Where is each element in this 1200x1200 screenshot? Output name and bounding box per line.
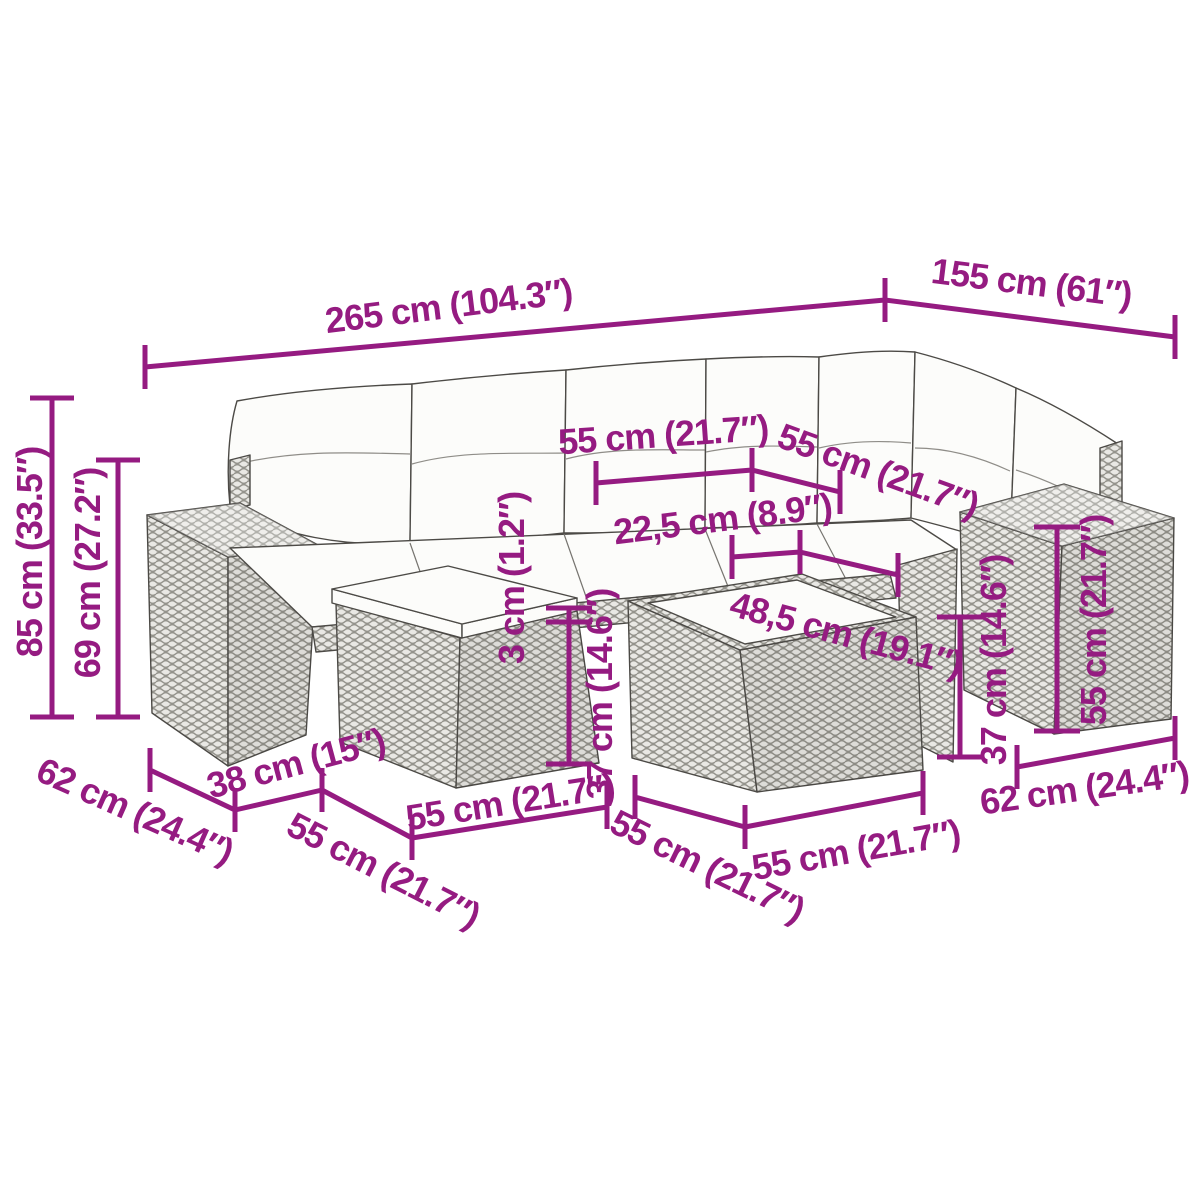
- dim-right-section-depth: 155 cm (61″): [885, 250, 1175, 359]
- dimension-diagram-svg: 265 cm (104.3″) 155 cm (61″) 85 cm (33.5…: [0, 0, 1200, 1200]
- left-armrest-left-face: [147, 515, 228, 766]
- dim-label-total-height: 85 cm (33.5″): [9, 447, 50, 657]
- dim-backrest-height: 69 cm (27.2″): [67, 460, 140, 717]
- dim-label-armrest-height: 55 cm (21.7″): [1073, 515, 1114, 725]
- dim-label-backrest-height: 69 cm (27.2″): [67, 468, 108, 678]
- left-frame-post: [230, 455, 250, 510]
- dim-label-right-base-height: 37 cm (14.6″): [973, 555, 1014, 765]
- back-cushion: [410, 370, 566, 542]
- dim-total-height: 85 cm (33.5″): [9, 398, 74, 717]
- product-dimension-image: 265 cm (104.3″) 155 cm (61″) 85 cm (33.5…: [0, 0, 1200, 1200]
- dim-label-cushion-thickness: 3 cm (1.2″): [491, 492, 532, 664]
- dim-label-table-width: 55 cm (21.7″): [749, 811, 963, 888]
- left-armrest: [147, 503, 318, 766]
- dim-label-right-section-depth: 155 cm (61″): [929, 250, 1134, 315]
